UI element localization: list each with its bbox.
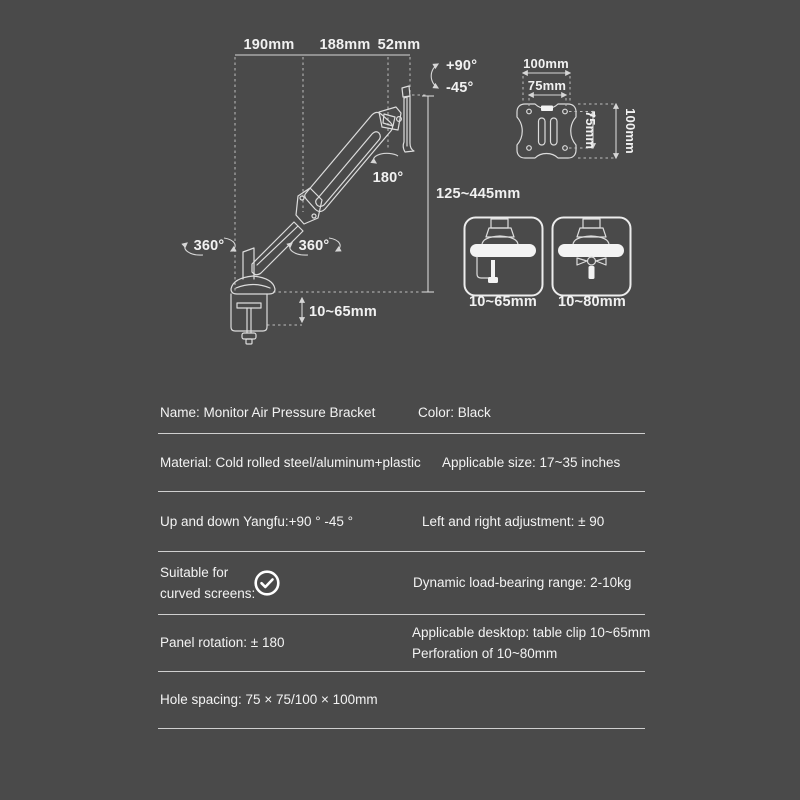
mount-option-clamp [465,218,543,296]
spec-up-down: Up and down Yangfu:+90 ° -45 ° [160,512,353,532]
spec-color: Color: Black [418,403,491,423]
spec-desktop-line1: Applicable desktop: table clip 10~65mm [412,622,650,643]
spec-material: Material: Cold rolled steel/aluminum+pla… [160,453,421,473]
panel-rotation-label: 180° [373,170,404,186]
dim-width-2: 188mm [320,37,371,53]
spec-left-right: Left and right adjustment: ± 90 [422,512,604,532]
spec-name: Name: Monitor Air Pressure Bracket [160,403,375,423]
spec-panel-rotation: Panel rotation: ± 180 [160,633,285,653]
tilt-rotation-arrow [431,64,438,88]
tilt-up-label: +90° [446,58,477,74]
panel-rotation-arrow [374,153,398,163]
spec-row-tilt: Up and down Yangfu:+90 ° -45 ° Left and … [158,492,645,552]
spec-load-range: Dynamic load-bearing range: 2-10kg [413,573,631,593]
spec-curved-line2: curved screens: [160,583,255,604]
spec-row-name: Name: Monitor Air Pressure Bracket Color… [158,392,645,434]
spec-hole-spacing: Hole spacing: 75 × 75/100 × 100mm [160,690,378,710]
tilt-down-label: -45° [446,80,474,96]
swivel-right-label: 360° [299,238,330,254]
vesa-inner-width-label: 75mm [528,78,566,93]
spec-row-hole-spacing: Hole spacing: 75 × 75/100 × 100mm [158,672,645,729]
vesa-plate-illustration [517,104,576,158]
spec-row-material: Material: Cold rolled steel/aluminum+pla… [158,434,645,492]
technical-diagram: 190mm 188mm 52mm +90° -45° 180° 360° 360… [0,0,800,380]
mount-clamp-range-label: 10~65mm [469,294,537,310]
spec-desktop-line2: Perforation of 10~80mm [412,643,650,664]
product-spec-sheet: 190mm 188mm 52mm +90° -45° 180° 360° 360… [0,0,800,800]
spec-applicable-size: Applicable size: 17~35 inches [442,453,620,473]
spec-curved-line1: Suitable for [160,562,255,583]
spec-row-curved: Suitable for curved screens: Dynamic loa… [158,552,645,615]
dimension-guides [235,55,434,325]
spec-curved-screens: Suitable for curved screens: [160,562,255,604]
dim-width-1: 190mm [244,37,295,53]
check-circle-icon [253,569,281,597]
mount-grommet-range-label: 10~80mm [558,294,626,310]
spec-desktop: Applicable desktop: table clip 10~65mm P… [412,622,650,664]
mount-option-grommet [553,218,631,296]
spec-table: Name: Monitor Air Pressure Bracket Color… [158,392,645,729]
vesa-inner-height-label: 75mm [583,111,598,149]
swivel-left-label: 360° [194,238,225,254]
dim-width-3: 52mm [378,37,421,53]
spec-row-rotation: Panel rotation: ± 180 Applicable desktop… [158,615,645,672]
height-range-label: 125~445mm [436,186,520,202]
vesa-top-width-label: 100mm [523,56,569,71]
clamp-thickness-label: 10~65mm [309,304,377,320]
vesa-side-height-label: 100mm [623,108,638,154]
